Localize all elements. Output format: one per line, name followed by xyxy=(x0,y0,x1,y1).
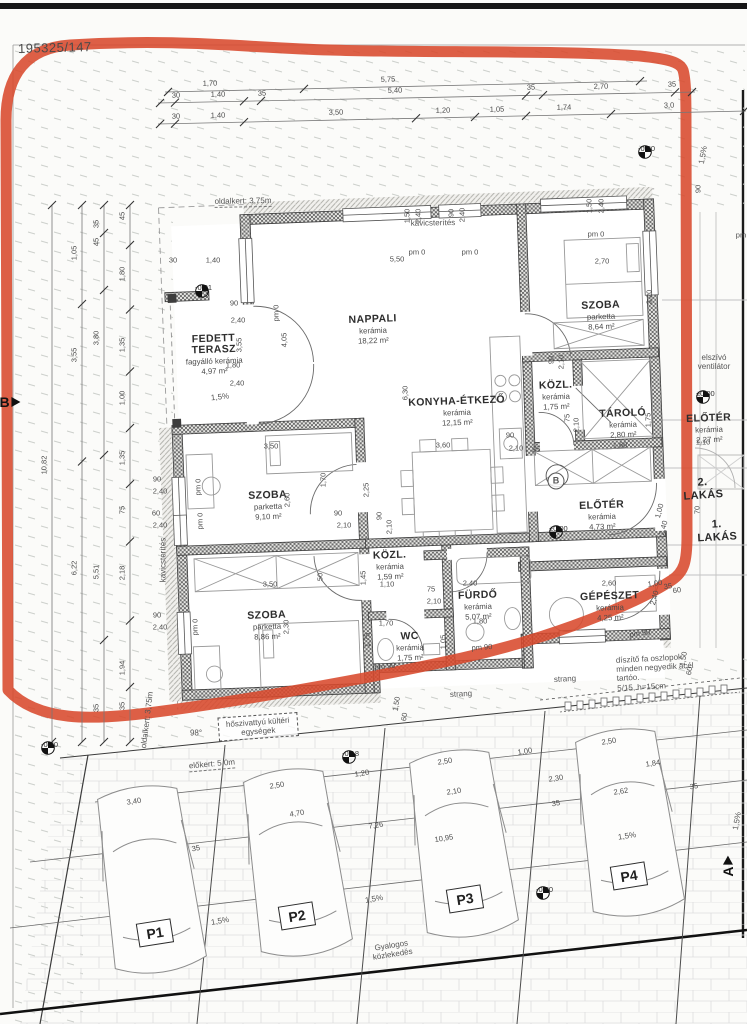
floor-plan-page: FEDETT TERASZfagyálló kerámia4,97 m²NAPP… xyxy=(0,0,747,1024)
dimension-line xyxy=(158,92,695,103)
dimension-lines-layer xyxy=(0,0,747,1024)
dimension-line xyxy=(165,81,647,92)
parcel-number: 195325/147 xyxy=(18,39,92,56)
dimension-line xyxy=(158,111,746,124)
